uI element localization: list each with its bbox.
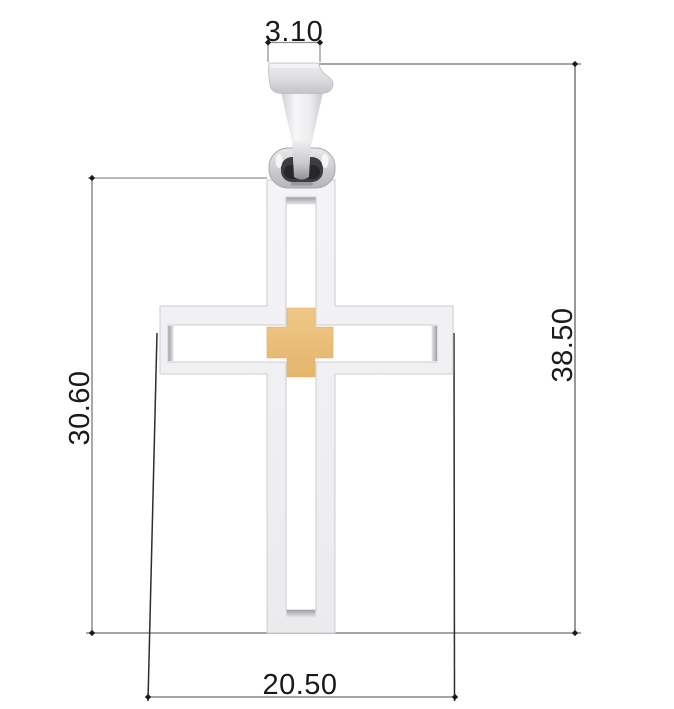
loop-bottom-shade <box>291 182 313 186</box>
tick <box>89 630 95 636</box>
cross-pendant <box>160 180 453 633</box>
drawing-canvas: 3.10 38.50 30.60 20.50 <box>0 0 674 709</box>
dim-cross-width <box>148 333 455 701</box>
tick <box>452 694 458 700</box>
extension-line-right <box>454 333 455 701</box>
bail-strap <box>292 140 311 180</box>
inner-wall-bottom <box>287 610 316 618</box>
bail <box>269 63 335 188</box>
dim-label-bail-width: 3.10 <box>265 16 323 48</box>
bail-cap-top-edge-highlight <box>270 64 318 68</box>
loop-highlight-right <box>322 154 329 168</box>
dim-label-overall-height: 38.50 <box>547 307 579 382</box>
inner-wall-left-arm <box>169 326 174 361</box>
inner-wall-right-arm <box>432 326 438 361</box>
tick <box>89 175 95 181</box>
tick <box>145 694 151 700</box>
loop-highlight-left <box>276 154 283 168</box>
dim-label-cross-height: 30.60 <box>64 370 96 445</box>
tick <box>572 630 578 636</box>
extension-line-left <box>148 333 157 701</box>
inner-wall-top <box>287 198 316 205</box>
tick <box>572 61 578 67</box>
pendant-technical-drawing: 3.10 38.50 30.60 20.50 <box>0 0 674 709</box>
dim-label-cross-width: 20.50 <box>262 669 337 701</box>
cross-outline-frame <box>160 180 453 633</box>
